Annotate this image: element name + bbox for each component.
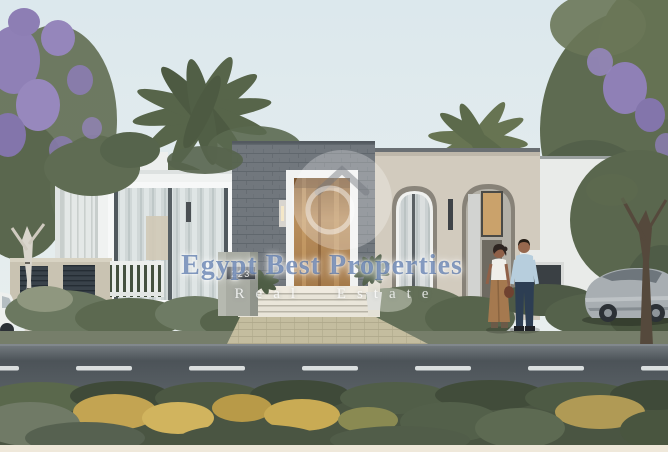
left-wall-sconce-icon (186, 202, 191, 222)
number-pillar (218, 252, 258, 316)
scene-illustration (0, 0, 668, 452)
lane-dashes (0, 366, 668, 371)
planter-pot (366, 292, 382, 310)
white-fence (110, 261, 164, 297)
arch-sconce-icon (448, 199, 453, 230)
foreground-hedge (0, 380, 668, 452)
villa-rendering: 223 Egypt Best Properties Real Estate (0, 0, 668, 452)
house-number-plaque: 223 (226, 266, 256, 280)
bottom-strip (0, 445, 668, 452)
entrance-door (286, 170, 358, 304)
